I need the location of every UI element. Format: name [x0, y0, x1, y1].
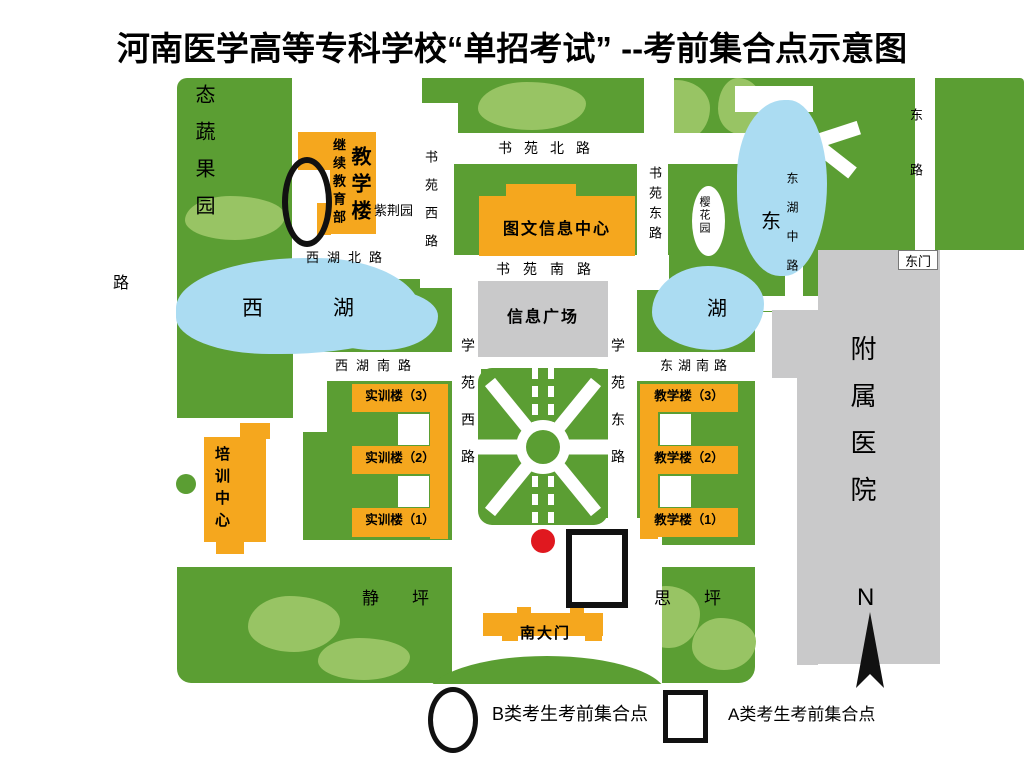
- building-label-teach-1: 教学楼（1）: [640, 514, 738, 527]
- flag-point-marker: [531, 529, 555, 553]
- road-label-xihu-south: 西湖南路: [335, 359, 419, 372]
- practice-courtyard-nub: [398, 414, 429, 445]
- road-label-outer-west: 路: [113, 276, 129, 292]
- training-center-building: [240, 423, 270, 439]
- building-label-practice-1: 实训楼（1）: [352, 514, 448, 527]
- area-label-zijing-garden: 紫荆园: [374, 204, 413, 217]
- north-gate-road: [644, 78, 674, 136]
- road-label-shuyuan-south: 书苑南路: [496, 262, 604, 276]
- hospital-area-notch: [772, 310, 818, 378]
- road-label-shuyuan-east: 书苑东路: [648, 166, 661, 246]
- legend-a-label: A类考生考前集合点: [728, 706, 875, 723]
- outer-west-road: [103, 70, 177, 769]
- building-label-practice-2: 实训楼（2）: [352, 452, 448, 465]
- legend-a-marker: [663, 690, 708, 743]
- road-label-shuyuan-north: 书苑北路: [498, 141, 602, 155]
- building-label-teaching: 教学楼: [349, 146, 369, 227]
- practice-courtyard-nub: [398, 476, 429, 507]
- assembly-point-b-marker: [282, 157, 332, 247]
- area-label-cherry-garden: 樱花园: [698, 196, 709, 235]
- building-label-practice-3: 实训楼（3）: [352, 390, 448, 403]
- area-label-orchard: 态蔬果园: [193, 84, 213, 232]
- compass-arrow-icon: [848, 612, 892, 690]
- area-label-hospital: 附属医院: [849, 335, 875, 523]
- legend-background: [60, 684, 1024, 769]
- east-gate-text: 东门: [905, 251, 931, 270]
- building-label-training-center: 培训中心: [214, 446, 229, 534]
- east-lake-upper: [737, 100, 827, 276]
- hospital-area-lower: [797, 378, 818, 665]
- west-lake-label-hu: 湖: [333, 298, 354, 319]
- road-label-donghu-middle: 东湖中路: [786, 172, 798, 288]
- campus-map: 河南医学高等专科学校“单招考试” --考前集合点示意图: [0, 0, 1024, 769]
- east-gate-label: 东门: [898, 250, 938, 270]
- building-label-teach-3: 教学楼（3）: [640, 390, 738, 403]
- donghu-middle-stub: [762, 296, 818, 311]
- south-gate-building: [502, 635, 518, 641]
- legend-b-label: B类考生考前集合点: [492, 705, 648, 723]
- east-lake-label-hu: 湖: [707, 299, 727, 319]
- map-title: 河南医学高等专科学校“单招考试” --考前集合点示意图: [0, 22, 1024, 70]
- area-label-jing-lawn: 静坪: [362, 590, 462, 607]
- building-label-south-gate: 南大门: [520, 626, 571, 641]
- road-label-xihu-north: 西湖北路: [306, 251, 390, 264]
- training-center-building: [216, 540, 244, 554]
- west-lake-label-xi: 西: [242, 298, 263, 319]
- building-label-teach-2: 教学楼（2）: [640, 452, 738, 465]
- central-axis-garden: [478, 368, 608, 525]
- east-lake-label-dong: 东: [761, 212, 781, 232]
- assembly-point-a-marker: [566, 529, 628, 608]
- compass-north-label: N: [857, 586, 874, 610]
- road-label-shuyuan-west: 书苑西路: [424, 150, 437, 262]
- south-gate-building: [585, 635, 602, 641]
- south-gate-building: [517, 607, 531, 614]
- building-label-library: 图文信息中心: [479, 222, 635, 238]
- legend-b-marker: [428, 687, 478, 753]
- area-label-si-lawn: 思坪: [654, 590, 754, 607]
- south-gate-building: [570, 607, 584, 614]
- road-label-xueyuan-west: 学苑西路: [461, 338, 475, 486]
- teach-courtyard-nub: [660, 414, 691, 445]
- building-label-continuing-edu: 继续教育部: [332, 138, 345, 228]
- road-label-east-road: 东路: [909, 108, 922, 218]
- hospital-area: [818, 250, 940, 664]
- area-label-info-plaza: 信息广场: [478, 310, 608, 326]
- road-label-donghu-south: 东湖南路: [660, 359, 732, 372]
- teach-courtyard-nub: [660, 476, 691, 507]
- round-lawn: [176, 474, 196, 494]
- road-label-xueyuan-east: 学苑东路: [611, 338, 625, 486]
